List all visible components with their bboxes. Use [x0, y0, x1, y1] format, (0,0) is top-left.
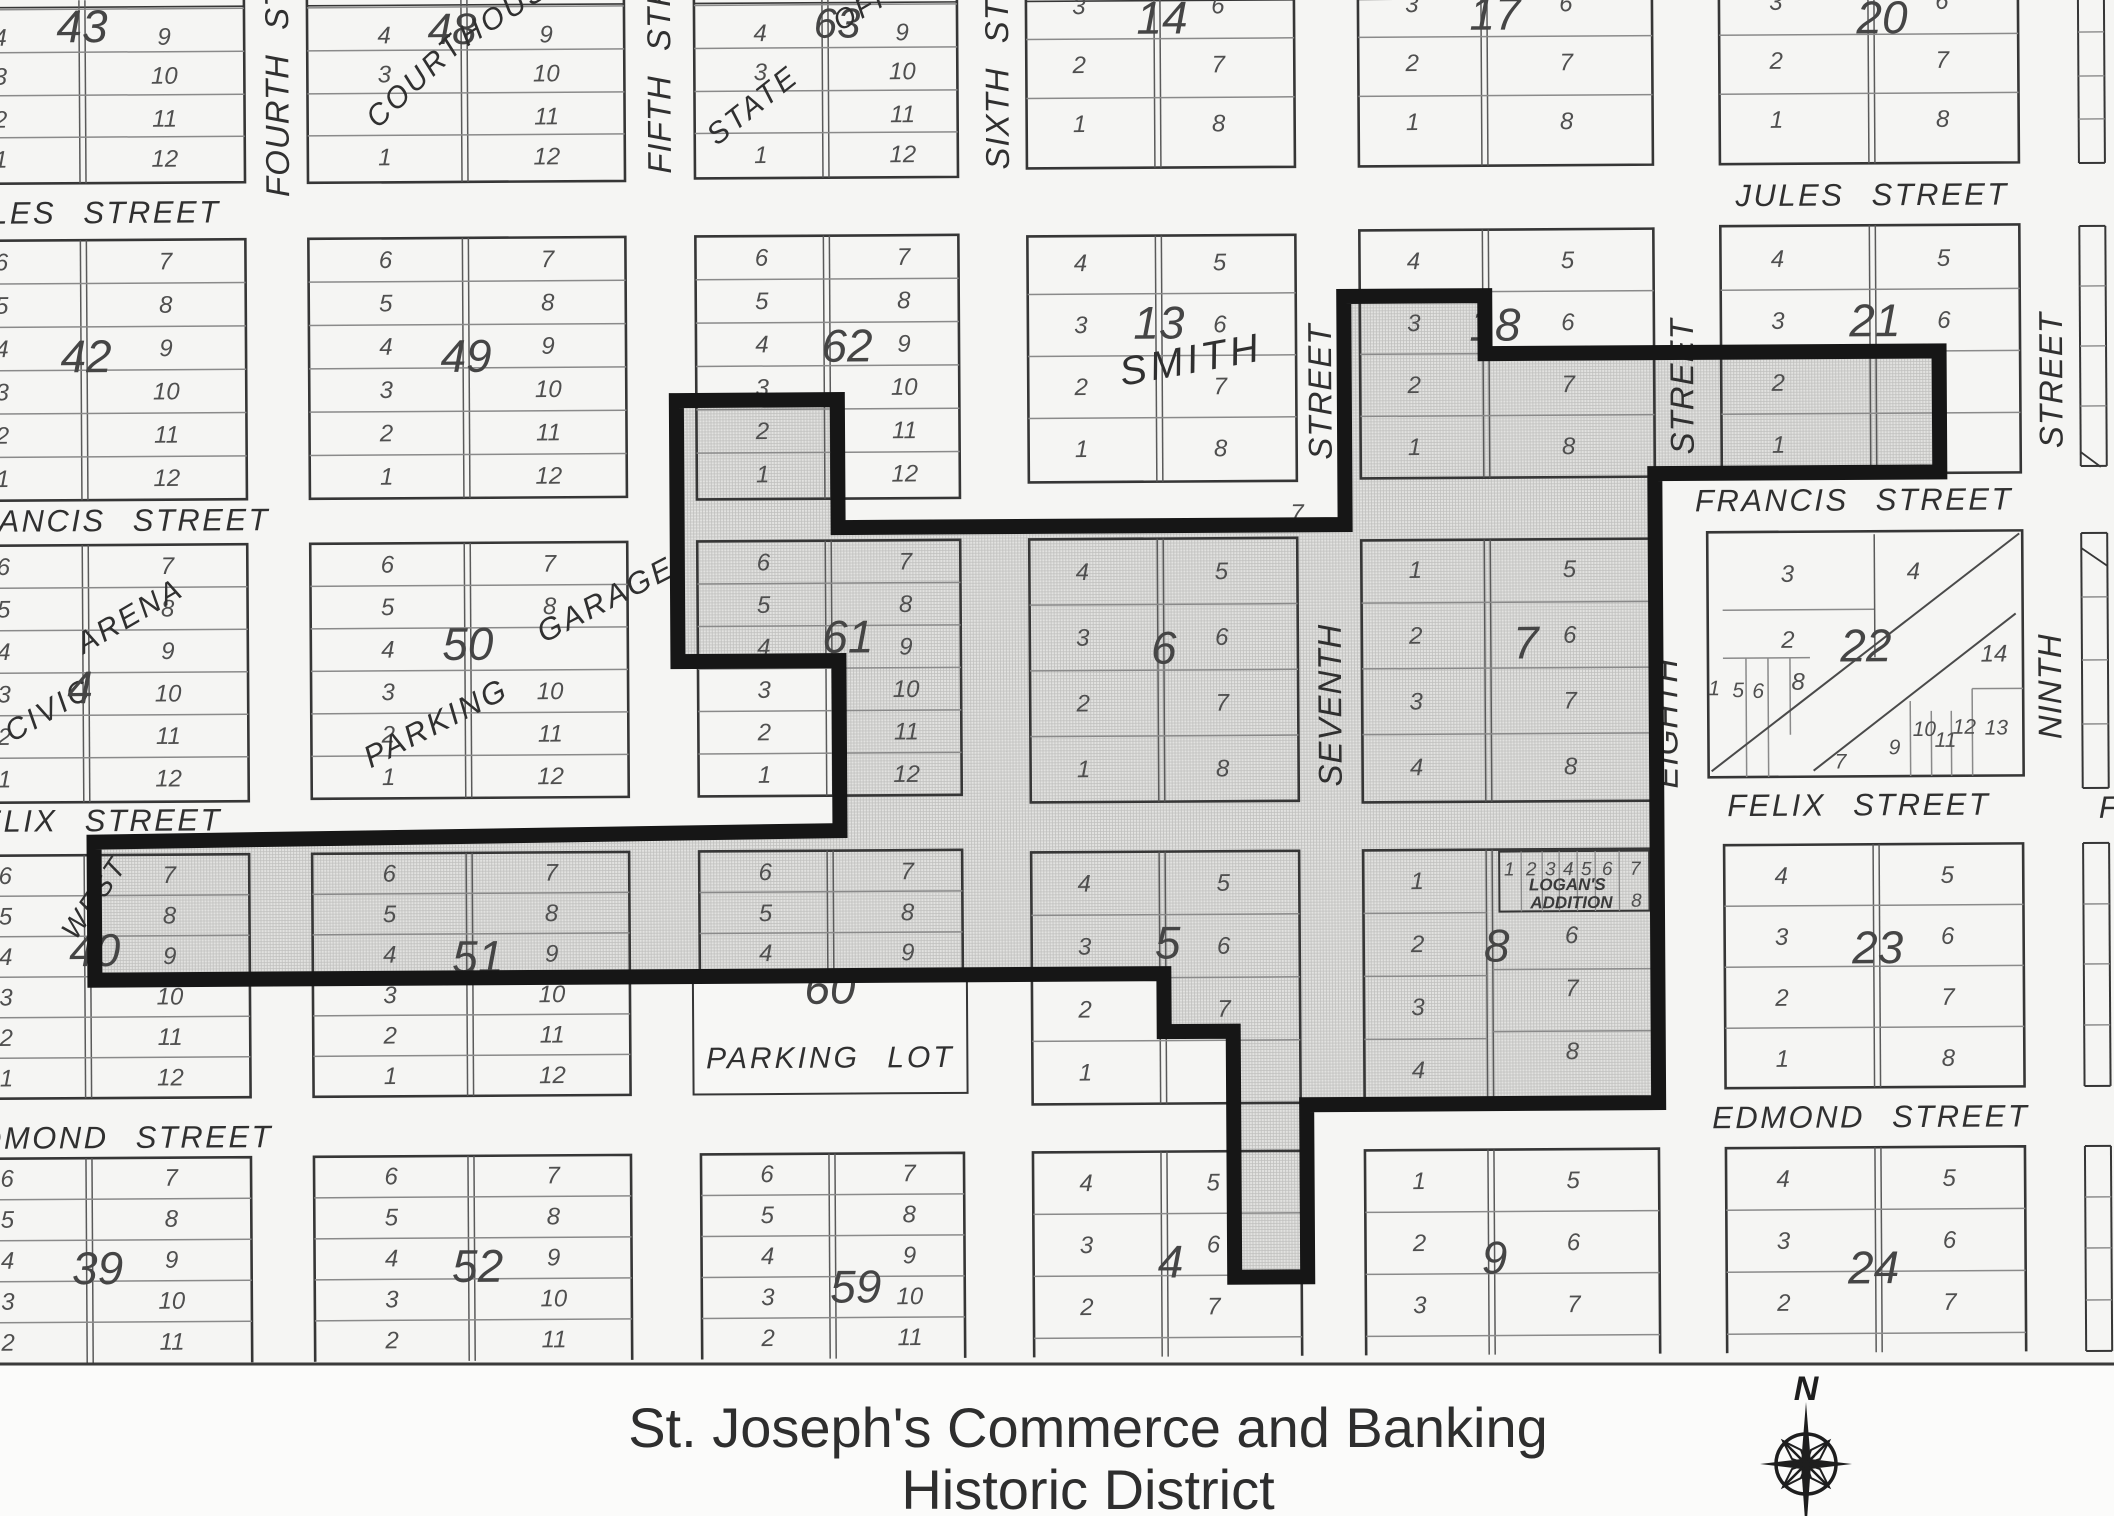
svg-text:3: 3: [0, 64, 8, 91]
svg-text:3: 3: [1078, 934, 1092, 961]
svg-text:1: 1: [384, 1063, 398, 1090]
svg-text:7: 7: [1562, 371, 1577, 398]
svg-text:2: 2: [755, 418, 770, 445]
svg-text:5: 5: [1732, 679, 1744, 702]
svg-text:52: 52: [452, 1240, 503, 1292]
svg-text:39: 39: [72, 1242, 123, 1294]
svg-text:8: 8: [899, 591, 913, 618]
svg-text:2: 2: [1074, 374, 1089, 401]
svg-text:5: 5: [1566, 1167, 1580, 1194]
svg-text:6: 6: [757, 549, 771, 576]
svg-text:1: 1: [1079, 1060, 1093, 1087]
svg-text:1: 1: [0, 1065, 13, 1092]
svg-text:3: 3: [1413, 1292, 1427, 1319]
svg-text:8: 8: [1212, 110, 1226, 137]
svg-text:9: 9: [541, 333, 555, 360]
svg-text:6: 6: [1941, 923, 1955, 950]
svg-text:6: 6: [384, 1163, 398, 1190]
svg-text:2: 2: [379, 420, 394, 447]
svg-text:14: 14: [1136, 0, 1187, 44]
svg-text:12: 12: [535, 463, 562, 490]
svg-text:7: 7: [1941, 984, 1956, 1011]
svg-text:4: 4: [0, 639, 11, 666]
svg-text:12: 12: [539, 1062, 566, 1089]
svg-text:5: 5: [1941, 862, 1955, 889]
svg-text:8: 8: [1560, 108, 1574, 135]
svg-text:6: 6: [1752, 680, 1764, 703]
svg-text:EDMOND STREET: EDMOND STREET: [0, 1119, 273, 1156]
svg-text:2: 2: [1072, 52, 1087, 79]
svg-text:8: 8: [159, 292, 173, 319]
svg-text:5: 5: [757, 592, 771, 619]
svg-text:9: 9: [159, 335, 173, 362]
svg-text:10: 10: [889, 58, 917, 85]
svg-text:3: 3: [1405, 0, 1419, 18]
svg-text:10: 10: [1913, 718, 1937, 741]
svg-text:6: 6: [0, 863, 13, 890]
svg-text:1: 1: [1412, 1168, 1426, 1195]
svg-text:11: 11: [892, 417, 917, 444]
svg-text:8: 8: [165, 1206, 179, 1233]
svg-text:5: 5: [761, 1202, 775, 1229]
svg-text:11: 11: [152, 106, 177, 133]
svg-text:22: 22: [1839, 619, 1891, 671]
svg-text:2: 2: [0, 423, 9, 450]
svg-text:10: 10: [891, 374, 919, 401]
svg-text:9: 9: [899, 633, 913, 660]
svg-text:9: 9: [161, 638, 175, 665]
svg-text:8: 8: [897, 287, 911, 314]
svg-text:4: 4: [761, 1243, 775, 1270]
svg-text:6: 6: [379, 247, 393, 274]
svg-text:8: 8: [163, 902, 177, 929]
svg-text:2: 2: [1776, 1290, 1791, 1317]
svg-text:NINTH: NINTH: [2031, 633, 2069, 739]
svg-text:8: 8: [1564, 753, 1578, 780]
svg-text:11: 11: [158, 1024, 183, 1051]
svg-text:3: 3: [1781, 561, 1795, 588]
svg-text:7: 7: [1936, 47, 1951, 74]
svg-text:4: 4: [67, 661, 93, 713]
svg-text:7: 7: [544, 860, 559, 887]
svg-text:10: 10: [893, 676, 921, 703]
svg-text:49: 49: [440, 330, 491, 382]
svg-text:13: 13: [1985, 716, 2009, 739]
svg-text:10: 10: [153, 378, 181, 405]
svg-text:3: 3: [383, 982, 397, 1009]
svg-text:3: 3: [1074, 312, 1088, 339]
svg-text:5: 5: [0, 903, 13, 930]
svg-text:6: 6: [1561, 309, 1575, 336]
svg-text:6: 6: [0, 554, 11, 581]
svg-text:11: 11: [536, 419, 561, 446]
svg-text:2: 2: [1410, 931, 1425, 958]
svg-text:11: 11: [894, 718, 919, 745]
svg-text:9: 9: [895, 19, 909, 46]
svg-text:4: 4: [759, 940, 773, 967]
svg-text:5: 5: [759, 900, 773, 927]
svg-text:12: 12: [151, 146, 178, 173]
svg-text:4: 4: [755, 331, 769, 358]
svg-text:4: 4: [753, 20, 767, 47]
svg-text:12: 12: [157, 1064, 184, 1091]
svg-text:SIXTH STREET: SIXTH STREET: [977, 0, 1016, 170]
svg-text:5: 5: [0, 293, 9, 320]
svg-text:2: 2: [1075, 690, 1090, 717]
svg-text:9: 9: [539, 21, 553, 48]
svg-text:N: N: [1794, 1370, 1820, 1408]
svg-text:8: 8: [1216, 755, 1230, 782]
svg-text:5: 5: [1563, 556, 1577, 583]
svg-text:5: 5: [1206, 1169, 1220, 1196]
svg-text:8: 8: [1791, 669, 1805, 696]
svg-text:3: 3: [1072, 0, 1086, 20]
svg-text:1: 1: [1408, 434, 1422, 461]
svg-text:6: 6: [1151, 622, 1177, 674]
svg-text:5: 5: [1942, 1165, 1956, 1192]
svg-text:11: 11: [538, 721, 563, 748]
svg-text:5: 5: [381, 594, 395, 621]
svg-text:6: 6: [0, 249, 9, 276]
svg-text:FRANCIS STREET: FRANCIS STREET: [0, 502, 270, 539]
svg-text:2: 2: [1079, 1294, 1094, 1321]
svg-text:6: 6: [1217, 933, 1231, 960]
svg-text:SEVENTH: SEVENTH: [1311, 624, 1349, 787]
svg-text:1: 1: [1504, 859, 1515, 880]
svg-text:9: 9: [165, 1247, 179, 1274]
svg-text:4: 4: [1771, 246, 1785, 273]
svg-text:1: 1: [1411, 868, 1425, 895]
svg-text:3: 3: [1080, 1232, 1094, 1259]
svg-text:7: 7: [1513, 616, 1540, 668]
svg-text:2: 2: [382, 1023, 397, 1050]
svg-text:7: 7: [541, 246, 556, 273]
svg-text:10: 10: [155, 680, 183, 707]
svg-text:3: 3: [1769, 0, 1783, 16]
svg-text:11: 11: [542, 1326, 567, 1353]
svg-text:1: 1: [0, 147, 8, 174]
svg-text:4: 4: [1074, 250, 1088, 277]
svg-text:8: 8: [1566, 1038, 1580, 1065]
svg-text:5: 5: [1217, 870, 1231, 897]
svg-text:2: 2: [1077, 997, 1092, 1024]
svg-text:8: 8: [547, 1203, 561, 1230]
svg-text:10: 10: [539, 981, 567, 1008]
svg-text:1: 1: [1406, 109, 1420, 136]
svg-text:8: 8: [541, 289, 555, 316]
svg-text:8: 8: [1484, 920, 1510, 972]
svg-text:5: 5: [385, 1204, 399, 1231]
svg-text:7: 7: [1207, 1293, 1222, 1320]
svg-text:3: 3: [1407, 310, 1421, 337]
svg-text:FIFTH STREET: FIFTH STREET: [639, 0, 678, 174]
svg-text:7: 7: [897, 244, 912, 271]
svg-text:JULES STREET: JULES STREET: [0, 194, 221, 231]
svg-text:6: 6: [1937, 307, 1951, 334]
svg-text:4: 4: [0, 336, 9, 363]
svg-text:LOGAN'S: LOGAN'S: [1529, 875, 1607, 894]
svg-text:7: 7: [1565, 975, 1580, 1002]
svg-text:STREET: STREET: [1301, 322, 1339, 460]
svg-text:12: 12: [153, 465, 180, 492]
svg-text:2: 2: [757, 719, 772, 746]
svg-text:2: 2: [0, 1025, 13, 1052]
svg-text:42: 42: [60, 330, 111, 382]
svg-text:8: 8: [903, 1201, 917, 1228]
svg-text:4: 4: [383, 942, 397, 969]
svg-text:4: 4: [1158, 1236, 1184, 1288]
svg-text:6: 6: [1935, 0, 1949, 15]
svg-text:4: 4: [1076, 559, 1090, 586]
svg-text:5: 5: [1155, 917, 1181, 969]
svg-text:3: 3: [1411, 994, 1425, 1021]
svg-text:12: 12: [155, 765, 182, 792]
svg-text:9: 9: [1889, 736, 1901, 759]
svg-text:2: 2: [760, 1325, 775, 1352]
svg-text:3: 3: [385, 1286, 399, 1313]
svg-text:5: 5: [1, 1207, 15, 1234]
svg-text:5: 5: [1937, 245, 1951, 272]
svg-text:10: 10: [535, 376, 563, 403]
svg-text:1: 1: [1077, 756, 1091, 783]
svg-text:7: 7: [1560, 49, 1575, 76]
svg-text:11: 11: [154, 422, 179, 449]
svg-text:7: 7: [1217, 996, 1232, 1023]
svg-text:STREET: STREET: [2032, 310, 2070, 448]
svg-text:2: 2: [1408, 623, 1423, 650]
svg-text:9: 9: [903, 1242, 917, 1269]
svg-text:17: 17: [1469, 0, 1522, 40]
svg-text:9: 9: [547, 1244, 561, 1271]
svg-text:7: 7: [1943, 1289, 1958, 1316]
svg-text:7: 7: [543, 551, 558, 578]
svg-text:5: 5: [1215, 558, 1229, 585]
svg-text:Historic District: Historic District: [901, 1458, 1275, 1516]
svg-text:12: 12: [1953, 716, 1977, 739]
svg-text:3: 3: [0, 984, 13, 1011]
svg-text:10: 10: [540, 1285, 568, 1312]
svg-text:3: 3: [381, 679, 395, 706]
svg-text:12: 12: [893, 761, 920, 788]
svg-text:4: 4: [1078, 871, 1092, 898]
svg-text:18: 18: [1469, 298, 1521, 350]
svg-text:11: 11: [534, 103, 559, 130]
svg-text:2: 2: [1780, 627, 1795, 654]
svg-text:5: 5: [379, 290, 393, 317]
svg-text:4: 4: [379, 334, 393, 361]
svg-text:3: 3: [0, 379, 10, 406]
svg-text:9: 9: [901, 939, 915, 966]
svg-text:7: 7: [162, 862, 177, 889]
svg-text:PARKING LOT: PARKING LOT: [706, 1041, 955, 1076]
svg-text:3: 3: [761, 1284, 775, 1311]
svg-text:1: 1: [1409, 557, 1423, 584]
svg-text:6: 6: [1215, 624, 1229, 651]
svg-text:10: 10: [158, 1288, 186, 1315]
svg-text:8: 8: [1631, 891, 1642, 912]
svg-text:4: 4: [1410, 754, 1424, 781]
svg-text:12: 12: [533, 143, 560, 170]
svg-text:4: 4: [0, 944, 12, 971]
svg-text:6: 6: [758, 859, 772, 886]
svg-text:10: 10: [151, 63, 179, 90]
svg-text:4: 4: [1412, 1057, 1426, 1084]
svg-text:23: 23: [1851, 921, 1904, 973]
svg-text:5: 5: [1561, 247, 1575, 274]
svg-text:9: 9: [163, 943, 177, 970]
svg-text:1: 1: [1776, 1046, 1790, 1073]
svg-text:8: 8: [1936, 106, 1950, 133]
svg-text:6: 6: [760, 1161, 774, 1188]
svg-text:3: 3: [1, 1289, 15, 1316]
svg-text:1: 1: [1770, 107, 1784, 134]
svg-text:62: 62: [821, 319, 872, 371]
svg-text:59: 59: [830, 1260, 881, 1312]
svg-text:11: 11: [890, 101, 915, 128]
svg-text:8: 8: [1214, 435, 1228, 462]
svg-text:3: 3: [1409, 688, 1423, 715]
svg-text:2: 2: [1405, 50, 1420, 77]
svg-text:4: 4: [381, 637, 395, 664]
svg-text:7: 7: [900, 858, 915, 885]
svg-text:9: 9: [545, 941, 559, 968]
svg-text:3: 3: [757, 677, 771, 704]
svg-text:3: 3: [0, 681, 12, 708]
svg-text:7: 7: [1630, 859, 1642, 880]
svg-text:50: 50: [442, 618, 494, 670]
svg-text:2: 2: [0, 1330, 15, 1357]
svg-text:7: 7: [1835, 750, 1848, 773]
svg-text:1: 1: [0, 766, 11, 793]
svg-text:1: 1: [1073, 111, 1087, 138]
svg-text:FELIX STREET: FELIX STREET: [1727, 787, 1990, 824]
svg-text:EDMOND STREET: EDMOND STREET: [1712, 1098, 2029, 1135]
svg-text:6: 6: [1943, 1227, 1957, 1254]
svg-text:1: 1: [380, 464, 394, 491]
svg-text:20: 20: [1855, 0, 1908, 43]
svg-text:JULES STREET: JULES STREET: [1734, 176, 2009, 213]
svg-text:7: 7: [899, 548, 914, 575]
svg-text:7: 7: [1567, 1291, 1582, 1318]
svg-text:1: 1: [756, 461, 770, 488]
svg-text:8: 8: [1942, 1045, 1956, 1072]
svg-text:4: 4: [1776, 1166, 1790, 1193]
svg-text:6: 6: [1207, 1231, 1221, 1258]
svg-text:7: 7: [159, 248, 174, 275]
svg-text:5: 5: [1213, 249, 1227, 276]
svg-text:6: 6: [1559, 0, 1573, 17]
svg-text:4: 4: [1775, 863, 1789, 890]
svg-text:6: 6: [382, 861, 396, 888]
svg-text:4: 4: [1, 1248, 15, 1275]
svg-text:43: 43: [56, 0, 108, 52]
svg-text:STREET: STREET: [1663, 316, 1701, 454]
svg-text:24: 24: [1847, 1241, 1899, 1293]
svg-text:9: 9: [157, 24, 171, 51]
svg-text:10: 10: [896, 1283, 924, 1310]
svg-text:21: 21: [1848, 294, 1900, 346]
svg-text:F: F: [2099, 790, 2114, 825]
svg-text:2: 2: [1774, 985, 1789, 1012]
svg-text:2: 2: [1769, 48, 1784, 75]
svg-text:7: 7: [1212, 51, 1227, 78]
svg-text:St. Joseph's Commerce and Bank: St. Joseph's Commerce and Banking: [628, 1396, 1548, 1459]
svg-text:2: 2: [1771, 370, 1786, 397]
svg-text:3: 3: [1775, 924, 1789, 951]
svg-text:1: 1: [378, 144, 392, 171]
svg-text:10: 10: [157, 983, 185, 1010]
svg-text:5: 5: [0, 596, 11, 623]
svg-text:4: 4: [1907, 558, 1921, 585]
svg-text:4: 4: [1407, 248, 1421, 275]
svg-text:7: 7: [164, 1165, 179, 1192]
svg-text:10: 10: [533, 60, 561, 87]
svg-text:3: 3: [380, 377, 394, 404]
svg-text:7: 7: [902, 1160, 917, 1187]
svg-text:3: 3: [1771, 308, 1785, 335]
svg-text:2: 2: [384, 1327, 399, 1354]
svg-text:8: 8: [1562, 433, 1576, 460]
svg-text:7: 7: [546, 1162, 561, 1189]
svg-text:6: 6: [755, 245, 769, 272]
svg-text:11: 11: [540, 1022, 565, 1049]
svg-text:14: 14: [1980, 640, 2007, 667]
svg-text:FOURTH ST: FOURTH ST: [258, 0, 296, 197]
svg-text:2: 2: [1407, 372, 1422, 399]
svg-text:2: 2: [1412, 1230, 1427, 1257]
svg-text:1: 1: [1075, 436, 1089, 463]
svg-text:12: 12: [537, 763, 564, 790]
svg-text:5: 5: [383, 901, 397, 928]
svg-text:8: 8: [545, 900, 559, 927]
svg-text:FRANCIS STREET: FRANCIS STREET: [1695, 481, 2013, 518]
svg-text:6: 6: [1211, 0, 1225, 19]
svg-text:6: 6: [1563, 622, 1577, 649]
svg-text:2: 2: [0, 107, 7, 134]
svg-text:1: 1: [1708, 677, 1720, 700]
svg-text:6: 6: [1565, 922, 1579, 949]
svg-text:11: 11: [898, 1324, 923, 1351]
svg-text:5: 5: [755, 288, 769, 315]
svg-text:3: 3: [1777, 1228, 1791, 1255]
svg-text:1: 1: [1772, 432, 1786, 459]
svg-text:4: 4: [377, 22, 391, 49]
svg-text:3: 3: [1076, 625, 1090, 652]
svg-text:11: 11: [160, 1329, 185, 1356]
svg-text:9: 9: [897, 330, 911, 357]
svg-text:6: 6: [0, 1166, 14, 1193]
svg-text:6: 6: [1567, 1229, 1581, 1256]
svg-text:ADDITION: ADDITION: [1529, 893, 1613, 913]
svg-text:4: 4: [385, 1245, 399, 1272]
svg-text:10: 10: [537, 678, 565, 705]
svg-text:9: 9: [1482, 1232, 1508, 1284]
svg-text:1: 1: [0, 466, 10, 493]
svg-text:12: 12: [889, 141, 916, 168]
svg-text:7: 7: [1563, 687, 1578, 714]
svg-text:1: 1: [758, 762, 772, 789]
svg-text:4: 4: [0, 25, 7, 52]
svg-text:8: 8: [901, 899, 915, 926]
svg-text:4: 4: [1079, 1170, 1093, 1197]
svg-text:11: 11: [156, 723, 181, 750]
svg-text:12: 12: [891, 460, 918, 487]
svg-text:7: 7: [1215, 690, 1230, 717]
svg-text:1: 1: [754, 142, 768, 169]
svg-text:6: 6: [381, 552, 395, 579]
